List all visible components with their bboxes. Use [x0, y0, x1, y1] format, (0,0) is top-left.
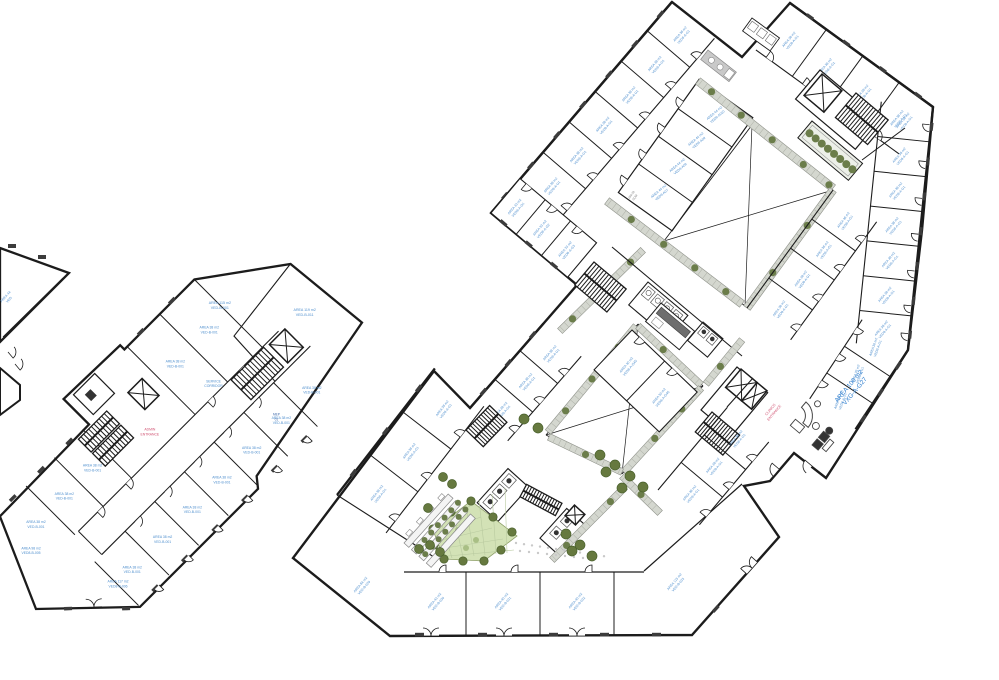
- svg-text:AREA 38 m2: AREA 38 m2: [200, 326, 220, 330]
- svg-text:ENTRANCE: ENTRANCE: [141, 432, 160, 436]
- svg-text:AREA 117 m2: AREA 117 m2: [108, 580, 129, 584]
- svg-text:VED-B-001: VED-B-001: [213, 480, 230, 484]
- svg-text:AREA 119 m2: AREA 119 m2: [294, 308, 316, 312]
- svg-text:VED8-B-005: VED8-B-005: [22, 551, 41, 555]
- svg-text:VED-B-001: VED-B-001: [273, 421, 290, 425]
- svg-text:AREA 38 m2: AREA 38 m2: [122, 565, 142, 569]
- svg-text:VED-B-001: VED-B-001: [27, 525, 44, 529]
- svg-text:SERVICE: SERVICE: [206, 379, 222, 383]
- svg-text:VED-B-001: VED-B-001: [184, 510, 201, 514]
- svg-text:AREA 38 m2: AREA 38 m2: [26, 520, 46, 524]
- svg-text:VED-B-001: VED-B-001: [243, 451, 260, 455]
- svg-text:CORRIDOR: CORRIDOR: [204, 384, 223, 388]
- svg-text:AREA 38 m2: AREA 38 m2: [242, 446, 262, 450]
- svg-text:VED-B-001: VED-B-001: [167, 364, 184, 368]
- svg-text:VED-B-001: VED-B-001: [56, 497, 73, 501]
- svg-text:AREA 38 m2: AREA 38 m2: [55, 492, 75, 496]
- svg-text:VED-B-001: VED-B-001: [211, 306, 229, 310]
- svg-text:AREA 38 m2: AREA 38 m2: [83, 464, 103, 468]
- svg-text:VED-B-001: VED-B-001: [154, 540, 171, 544]
- svg-text:AREA 38 m2: AREA 38 m2: [302, 386, 322, 390]
- svg-text:VED-B-001: VED-B-001: [303, 391, 320, 395]
- svg-text:AREA 38 m2: AREA 38 m2: [212, 476, 232, 480]
- svg-text:ADMIN: ADMIN: [144, 428, 155, 432]
- svg-text:AREA 38 m2: AREA 38 m2: [183, 505, 203, 509]
- svg-text:AREA 115 m2: AREA 115 m2: [209, 301, 231, 305]
- svg-text:VED8-B-006: VED8-B-006: [109, 584, 128, 588]
- svg-text:VED-B-011: VED-B-011: [296, 313, 314, 317]
- svg-text:VED-B-001: VED-B-001: [201, 330, 218, 334]
- svg-text:01: 01: [275, 417, 279, 421]
- svg-text:AREA 38 m2: AREA 38 m2: [166, 360, 186, 364]
- svg-text:VED-B-001: VED-B-001: [84, 468, 101, 472]
- svg-text:AREA 38 m2: AREA 38 m2: [153, 535, 173, 539]
- svg-text:MEP: MEP: [273, 413, 280, 417]
- svg-text:AREA 98 m2: AREA 98 m2: [21, 546, 41, 550]
- svg-text:VED-B-001: VED-B-001: [124, 570, 141, 574]
